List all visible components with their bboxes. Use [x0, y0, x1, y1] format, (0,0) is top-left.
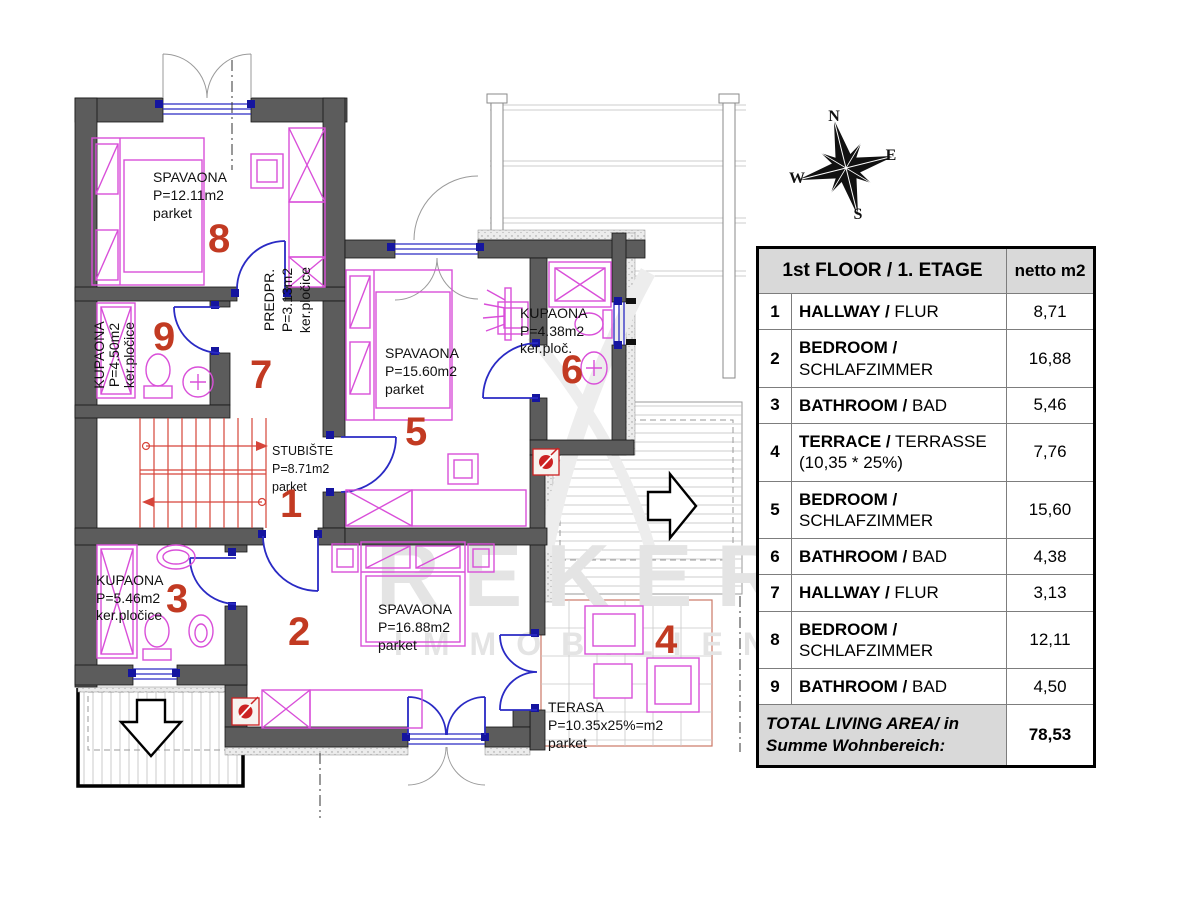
room-number-2: 2 [288, 610, 310, 654]
svg-text:parket: parket [385, 381, 424, 397]
drain-icon [533, 448, 559, 475]
room7-label: PREDPR.P=3.13m2ker.pločice [261, 267, 313, 333]
svg-text:ker.pločice: ker.pločice [297, 267, 313, 333]
svg-text:PREDPR.: PREDPR. [261, 269, 277, 331]
window-top [163, 104, 251, 114]
svg-text:P=4.38m2: P=4.38m2 [520, 323, 584, 339]
room-number-3: 3 [166, 577, 188, 621]
svg-text:P=8.71m2: P=8.71m2 [272, 462, 329, 476]
svg-text:KUPAONA: KUPAONA [520, 305, 588, 321]
table-row: 3 BATHROOM / BAD 5,46 [758, 387, 1095, 423]
room-number-9: 9 [153, 315, 175, 359]
entrance-arrow-down-icon [121, 700, 181, 756]
room9-label: KUPAONAP=4.50m2ker.pločice [91, 321, 137, 389]
window-room3 [133, 669, 177, 679]
compass-north-label: N [828, 108, 840, 125]
room-number-5: 5 [405, 410, 427, 454]
table-row: 2 BEDROOM / SCHLAFZIMMER 16,88 [758, 330, 1095, 388]
svg-text:P=12.11m2: P=12.11m2 [153, 187, 224, 203]
table-row: 8 BEDROOM / SCHLAFZIMMER 12,11 [758, 611, 1095, 669]
svg-text:P=4.50m2: P=4.50m2 [106, 323, 122, 387]
compass-south-label: S [854, 206, 863, 223]
drain-icon [232, 697, 259, 725]
table-row: 4 TERRACE / TERRASSE (10,35 * 25%) 7,76 [758, 424, 1095, 482]
french-door-sill [408, 734, 485, 744]
table-title: 1st FLOOR / 1. ETAGE [758, 248, 1007, 294]
total-value: 78,53 [1007, 705, 1095, 767]
room-number-6: 6 [561, 348, 583, 392]
svg-text:P=15.60m2: P=15.60m2 [385, 363, 457, 379]
table-row: 5 BEDROOM / SCHLAFZIMMER 15,60 [758, 481, 1095, 539]
svg-text:ker.pločice: ker.pločice [96, 607, 162, 623]
svg-text:SPAVAONA: SPAVAONA [378, 601, 453, 617]
svg-text:P=16.88m2: P=16.88m2 [378, 619, 450, 635]
table-row: 7 HALLWAY / FLUR 3,13 [758, 575, 1095, 611]
table-unit-header: netto m2 [1007, 248, 1095, 294]
room-number-1: 1 [280, 482, 302, 526]
total-label: TOTAL LIVING AREA/ in Summe Wohnbereich: [758, 705, 1007, 767]
svg-text:parket: parket [548, 735, 587, 751]
area-table: 1st FLOOR / 1. ETAGE netto m2 1 HALLWAY … [756, 246, 1096, 768]
svg-text:parket: parket [153, 205, 192, 221]
room-number-7: 7 [250, 353, 272, 397]
table-row: 1 HALLWAY / FLUR 8,71 [758, 294, 1095, 330]
compass-east-label: E [886, 147, 897, 164]
table-header-row: 1st FLOOR / 1. ETAGE netto m2 [758, 248, 1095, 294]
pergola-post [491, 100, 503, 232]
table-row: 6 BATHROOM / BAD 4,38 [758, 539, 1095, 575]
room3-label: KUPAONAP=5.46m2ker.pločice [96, 572, 164, 623]
svg-text:parket: parket [378, 637, 417, 653]
svg-text:SPAVAONA: SPAVAONA [385, 345, 460, 361]
svg-text:KUPAONA: KUPAONA [91, 321, 107, 389]
compass-west-label: W [789, 170, 805, 187]
pergola-post [723, 100, 735, 378]
table-row: 9 BATHROOM / BAD 4,50 [758, 669, 1095, 705]
svg-text:P=10.35x25%=m2: P=10.35x25%=m2 [548, 717, 663, 733]
svg-text:ker.pločice: ker.pločice [121, 322, 137, 388]
svg-text:P=5.46m2: P=5.46m2 [96, 590, 160, 606]
table-total-row: TOTAL LIVING AREA/ in Summe Wohnbereich:… [758, 705, 1095, 767]
svg-text:P=3.13m2: P=3.13m2 [279, 268, 295, 332]
svg-text:STUBIŠTE: STUBIŠTE [272, 443, 333, 458]
window-room5-top [395, 244, 478, 254]
room-number-4: 4 [655, 618, 678, 662]
room-number-8: 8 [208, 217, 230, 261]
balcony-bottom-left [78, 688, 243, 786]
svg-text:SPAVAONA: SPAVAONA [153, 169, 228, 185]
compass-rose: N E S W [785, 107, 906, 228]
svg-text:TERASA: TERASA [548, 699, 605, 715]
svg-text:KUPAONA: KUPAONA [96, 572, 164, 588]
